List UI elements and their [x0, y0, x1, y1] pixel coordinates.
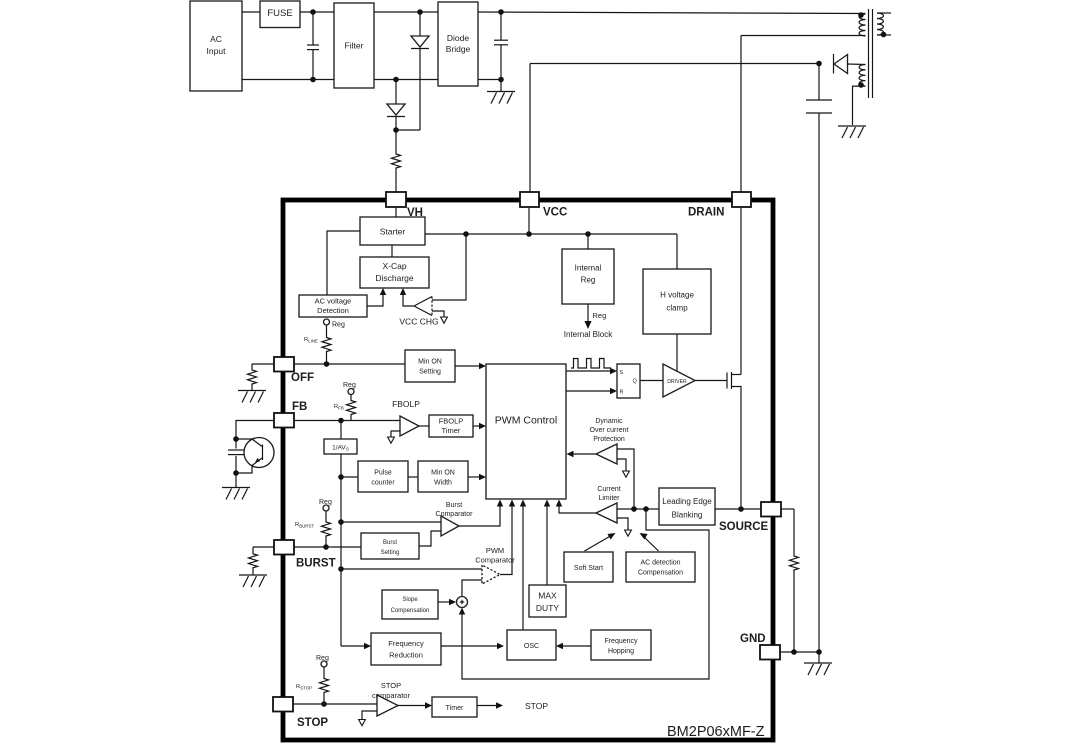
svg-text:VCC CHG: VCC CHG — [399, 317, 438, 327]
svg-text:Setting: Setting — [419, 369, 441, 376]
svg-text:Timer: Timer — [446, 705, 464, 712]
svg-text:clamp: clamp — [666, 304, 688, 313]
svg-text:VCC: VCC — [543, 207, 567, 219]
svg-text:Pulse: Pulse — [374, 470, 392, 477]
svg-text:FBOLP: FBOLP — [392, 399, 420, 409]
svg-text:RFB: RFB — [334, 404, 344, 411]
svg-text:Reduction: Reduction — [389, 651, 423, 660]
svg-text:Min ON: Min ON — [431, 470, 455, 477]
svg-text:Input: Input — [207, 46, 227, 56]
svg-text:SOURCE: SOURCE — [719, 521, 769, 533]
svg-text:1/AVS: 1/AVS — [332, 445, 349, 452]
svg-text:Current: Current — [597, 486, 620, 493]
svg-text:AC: AC — [210, 34, 222, 44]
svg-text:DRAIN: DRAIN — [688, 207, 724, 219]
svg-text:Hopping: Hopping — [608, 648, 634, 655]
svg-text:Reg: Reg — [581, 276, 596, 285]
svg-text:H voltage: H voltage — [660, 291, 694, 300]
svg-text:Bridge: Bridge — [446, 44, 471, 54]
svg-text:Diode: Diode — [447, 33, 469, 43]
svg-text:Width: Width — [434, 480, 452, 487]
svg-text:AC voltage: AC voltage — [315, 297, 352, 306]
svg-text:BURST: BURST — [296, 558, 336, 570]
svg-text:RSTOP: RSTOP — [296, 684, 312, 691]
svg-text:Timer: Timer — [442, 426, 461, 435]
svg-text:Blanking: Blanking — [672, 511, 703, 520]
svg-text:FB: FB — [292, 401, 307, 413]
svg-text:DUTY: DUTY — [536, 603, 559, 613]
svg-text:Reg: Reg — [593, 311, 607, 320]
svg-text:Setting: Setting — [381, 550, 400, 556]
svg-text:OSC: OSC — [524, 643, 539, 650]
svg-text:Slope: Slope — [402, 597, 418, 603]
svg-text:Frequency: Frequency — [388, 639, 424, 648]
svg-text:Compensation: Compensation — [638, 570, 683, 577]
svg-text:Filter: Filter — [345, 41, 364, 51]
svg-text:Comparator: Comparator — [475, 556, 515, 565]
svg-text:Protection: Protection — [593, 436, 625, 443]
svg-text:PWM Control: PWM Control — [495, 415, 557, 427]
svg-text:Limiter: Limiter — [598, 495, 620, 502]
svg-text:Q: Q — [633, 379, 638, 385]
svg-text:Compensation: Compensation — [391, 608, 430, 614]
svg-text:STOP: STOP — [381, 681, 401, 690]
svg-text:Soft Start: Soft Start — [574, 565, 603, 572]
svg-text:Internal: Internal — [575, 264, 602, 273]
svg-text:Dynamic: Dynamic — [595, 418, 623, 425]
svg-text:Discharge: Discharge — [375, 273, 414, 283]
svg-text:Internal Block: Internal Block — [564, 330, 613, 339]
svg-text:Burst: Burst — [383, 540, 397, 546]
svg-text:GND: GND — [740, 633, 766, 645]
svg-text:Reg: Reg — [343, 382, 356, 389]
svg-text:R: R — [620, 390, 624, 396]
svg-text:Min ON: Min ON — [418, 359, 442, 366]
svg-text:Detection: Detection — [317, 306, 349, 315]
svg-text:Reg: Reg — [332, 322, 345, 329]
svg-text:S: S — [620, 370, 624, 376]
svg-text:OFF: OFF — [291, 372, 314, 384]
svg-text:BM2P06xMF-Z: BM2P06xMF-Z — [667, 724, 765, 740]
svg-text:Leading Edge: Leading Edge — [662, 497, 712, 506]
svg-text:STOP: STOP — [297, 717, 328, 729]
svg-text:RLINE: RLINE — [304, 337, 318, 344]
svg-text:STOP: STOP — [525, 701, 548, 711]
svg-text:Frequency: Frequency — [604, 638, 638, 645]
svg-text:Over current: Over current — [590, 427, 629, 434]
svg-text:FBOLP: FBOLP — [439, 417, 464, 426]
svg-text:RBURST: RBURST — [295, 522, 314, 529]
svg-text:DRIVER: DRIVER — [667, 379, 687, 385]
svg-text:Starter: Starter — [380, 227, 406, 237]
svg-text:PWM: PWM — [486, 546, 504, 555]
svg-text:MAX: MAX — [538, 591, 557, 601]
svg-text:counter: counter — [371, 480, 395, 487]
svg-text:X-Cap: X-Cap — [382, 261, 406, 271]
svg-text:AC detection: AC detection — [640, 560, 680, 567]
svg-text:Burst: Burst — [446, 502, 462, 509]
svg-text:FUSE: FUSE — [267, 8, 292, 19]
